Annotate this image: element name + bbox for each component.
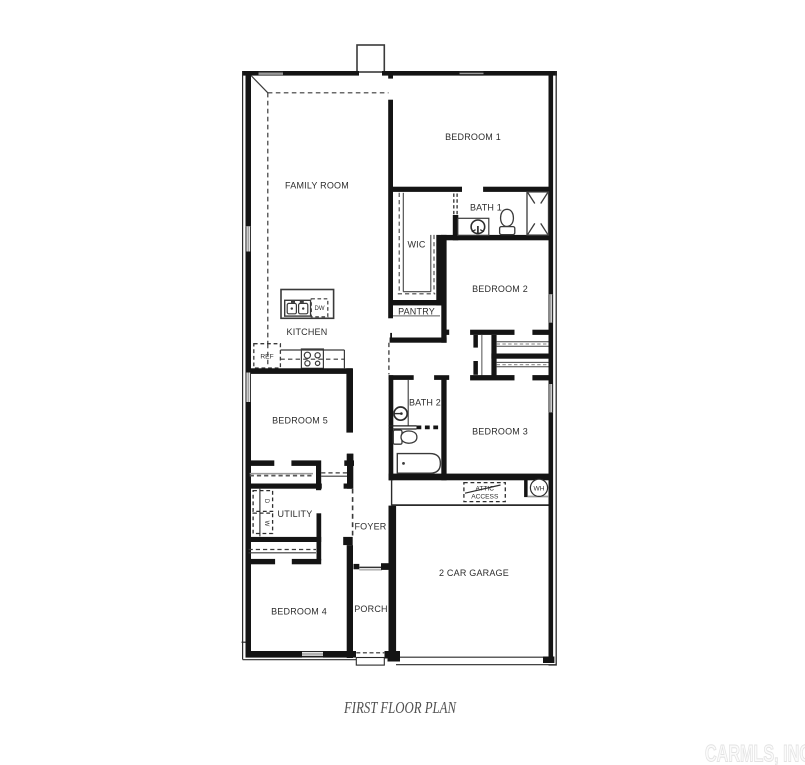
svg-text:DW: DW <box>315 306 325 312</box>
svg-text:D: D <box>263 499 269 504</box>
svg-text:FIRST FLOOR PLAN: FIRST FLOOR PLAN <box>343 698 457 717</box>
svg-text:BEDROOM 4: BEDROOM 4 <box>271 606 327 616</box>
svg-text:BEDROOM 2: BEDROOM 2 <box>472 284 528 294</box>
svg-text:UTILITY: UTILITY <box>278 509 313 519</box>
svg-text:FAMILY ROOM: FAMILY ROOM <box>285 181 349 191</box>
svg-text:PORCH: PORCH <box>354 604 388 614</box>
svg-text:BATH 1: BATH 1 <box>470 202 502 212</box>
svg-text:REF: REF <box>260 354 273 361</box>
svg-text:BEDROOM 1: BEDROOM 1 <box>445 132 501 142</box>
svg-text:W: W <box>263 521 269 527</box>
svg-text:PANTRY: PANTRY <box>398 307 435 317</box>
svg-text:BATH 2: BATH 2 <box>409 398 441 408</box>
svg-text:KITCHEN: KITCHEN <box>287 327 328 337</box>
svg-text:BEDROOM 5: BEDROOM 5 <box>272 415 328 425</box>
svg-text:FOYER: FOYER <box>354 521 386 531</box>
svg-text:2 CAR GARAGE: 2 CAR GARAGE <box>439 568 509 578</box>
svg-text:WH: WH <box>534 485 545 492</box>
svg-text:WIC: WIC <box>407 239 425 249</box>
svg-text:CARMLS, INC: CARMLS, INC <box>705 741 805 765</box>
svg-text:BEDROOM 3: BEDROOM 3 <box>472 427 528 437</box>
svg-text:ACCESS: ACCESS <box>471 494 499 501</box>
